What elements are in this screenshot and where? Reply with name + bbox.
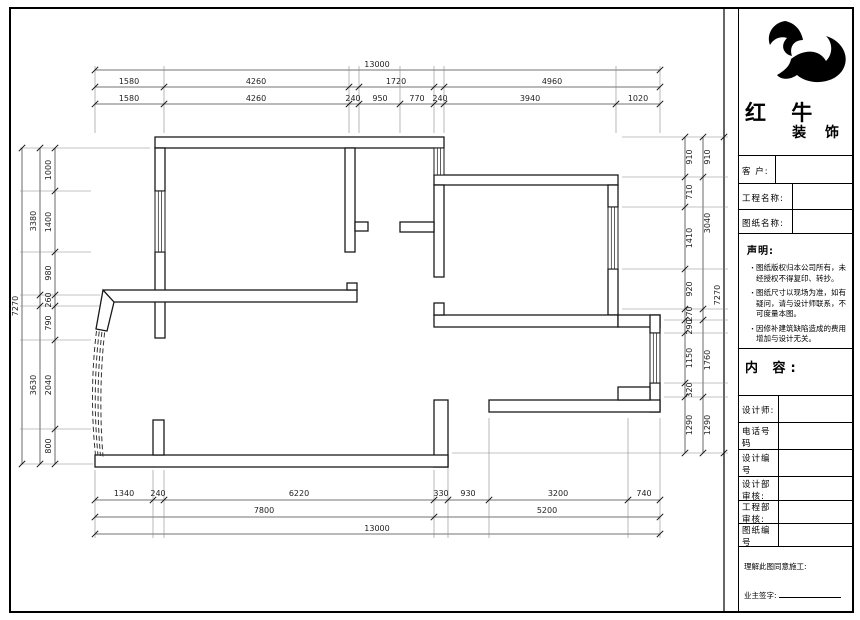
- field-label: 设计编号: [739, 450, 779, 476]
- dim-label: 13000: [364, 524, 389, 533]
- dim-label: 3940: [520, 94, 540, 103]
- field-value-empty: [779, 477, 852, 500]
- dim-label: 790: [44, 315, 53, 330]
- dim-label: 1410: [685, 228, 694, 248]
- wall-stub-2: [400, 222, 434, 232]
- field-row-design-number: 设计编号: [739, 449, 852, 476]
- window-right-lower: [650, 333, 660, 383]
- dim-label: 240: [150, 489, 165, 498]
- logo-area: 红 牛 装 饰: [739, 9, 852, 155]
- dim-label: 3380: [29, 211, 38, 231]
- field-label: 设计部审核:: [739, 477, 779, 500]
- dim-label: 270: [685, 306, 694, 321]
- dim-label: 240: [432, 94, 447, 103]
- dim-label: 3630: [29, 375, 38, 395]
- wall-horizontal-mid-notch: [347, 283, 357, 290]
- field-label: 客 户:: [739, 156, 776, 183]
- bull-swoosh-icon: [739, 9, 854, 97]
- dim-label: 1020: [628, 94, 648, 103]
- statement-item: 图纸版权归本公司所有，未经授权不得复印、转抄。: [749, 263, 847, 284]
- field-value-empty: [793, 184, 852, 209]
- dim-label: 290: [685, 319, 694, 334]
- wall-left-upper: [155, 148, 165, 191]
- field-label: 工程部审核:: [739, 501, 779, 523]
- dim-label: 1340: [114, 489, 134, 498]
- field-value-empty: [779, 396, 852, 422]
- wall-bottom: [95, 455, 448, 467]
- dim-label: 1760: [703, 350, 712, 370]
- flue-box: [618, 387, 650, 400]
- wall-bottom-stub: [153, 420, 164, 455]
- wall-room-br-top: [434, 315, 618, 327]
- dim-label: 930: [460, 489, 475, 498]
- wall-right-upper-b: [608, 269, 618, 315]
- field-value-empty: [793, 210, 852, 233]
- owner-signature-label: 业主签字:: [744, 588, 848, 601]
- dim-label: 1720: [386, 77, 406, 86]
- field-label: 设计师:: [739, 396, 779, 422]
- wall-room-br-notch: [434, 303, 444, 315]
- dim-label: 3200: [548, 489, 568, 498]
- field-row-customer: 客 户:: [739, 155, 852, 183]
- wall-top-left: [155, 137, 444, 148]
- field-value-empty: [779, 501, 852, 523]
- dim-label: 1400: [44, 212, 53, 232]
- statement-item: 因修补建筑缺陷造成的费用增加与设计无关。: [749, 324, 847, 345]
- dim-label: 1290: [685, 415, 694, 435]
- dim-label: 1580: [119, 94, 139, 103]
- brand-subname: 装 饰: [792, 122, 846, 142]
- dim-label: 950: [372, 94, 387, 103]
- field-value-empty: [779, 423, 852, 449]
- dim-label: 740: [636, 489, 651, 498]
- dim-label: 1150: [685, 348, 694, 368]
- dim-label: 4260: [246, 94, 266, 103]
- dim-label: 920: [685, 281, 694, 296]
- dim-label: 800: [44, 438, 53, 453]
- dim-label: 710: [685, 184, 694, 199]
- field-row-design-review: 设计部审核:: [739, 476, 852, 500]
- field-label: 图纸名称:: [739, 210, 793, 233]
- wall-room-br-bottom: [489, 400, 660, 412]
- statement-item: 图纸尺寸以现场为准，如有疑问，请与设计师联系，不可度量本图。: [749, 288, 847, 320]
- dim-label: 770: [409, 94, 424, 103]
- dim-label: 5200: [537, 506, 557, 515]
- field-row-drawing-number: 图纸编号: [739, 523, 852, 546]
- dim-label: 2040: [44, 375, 53, 395]
- window-curved-bay: [92, 331, 104, 457]
- statement-list: 图纸版权归本公司所有，未经授权不得复印、转抄。 图纸尺寸以现场为准，如有疑问，请…: [745, 263, 847, 345]
- field-row-drawing-name: 图纸名称:: [739, 209, 852, 233]
- field-label: 工程名称:: [739, 184, 793, 209]
- statement-heading: 声明:: [747, 242, 847, 257]
- field-row-project-name: 工程名称:: [739, 183, 852, 209]
- dim-label: 980: [44, 265, 53, 280]
- signature-line: [779, 588, 841, 598]
- field-label: 电话号码: [739, 423, 779, 449]
- content-block: 内 容:: [739, 348, 852, 395]
- floor-plan-canvas: 13000 1580 4260 1720 4960 1580 4260 240 …: [0, 0, 860, 620]
- dim-label: 7270: [11, 296, 20, 316]
- window-top-step: [434, 148, 444, 175]
- dim-label: 4960: [542, 77, 562, 86]
- dim-label: 7270: [713, 285, 722, 305]
- wall-right-lower-a: [650, 315, 660, 333]
- field-value-empty: [776, 156, 852, 183]
- dim-label: 1000: [44, 160, 53, 180]
- statement-block: 声明: 图纸版权归本公司所有，未经授权不得复印、转抄。 图纸尺寸以现场为准，如有…: [739, 233, 852, 348]
- field-row-engineering-review: 工程部审核:: [739, 500, 852, 523]
- dim-label: 3040: [703, 213, 712, 233]
- dim-label: 13000: [364, 60, 389, 69]
- title-block: 红 牛 装 饰 客 户: 工程名称: 图纸名称: 声明: 图纸版权归本公司所有，…: [738, 8, 853, 612]
- dim-label: 240: [345, 94, 360, 103]
- dim-label: 6220: [289, 489, 309, 498]
- wall-stub-1: [355, 222, 368, 231]
- wall-interior-1: [345, 148, 355, 252]
- wall-top-right: [434, 175, 618, 185]
- floor-plan-walls: [95, 137, 660, 467]
- field-value-empty: [779, 450, 852, 476]
- signature-block: 理解此图同意施工: 业主签字:: [739, 546, 852, 611]
- dim-label: 330: [433, 489, 448, 498]
- dim-label: 260: [44, 292, 53, 307]
- approval-statement: 理解此图同意施工:: [744, 561, 848, 572]
- dim-label: 1580: [119, 77, 139, 86]
- field-row-phone: 电话号码: [739, 422, 852, 449]
- wall-interior-2: [434, 185, 444, 277]
- dim-label: 1290: [703, 415, 712, 435]
- dim-label: 7800: [254, 506, 274, 515]
- content-label: 内 容:: [745, 361, 801, 376]
- drawing-sheet: 13000 1580 4260 1720 4960 1580 4260 240 …: [0, 0, 860, 620]
- window-left: [155, 191, 165, 252]
- dim-label: 910: [703, 149, 712, 164]
- dim-label: 910: [685, 149, 694, 164]
- field-value-empty: [779, 524, 852, 546]
- wall-right-upper-a: [608, 185, 618, 207]
- field-label: 图纸编号: [739, 524, 779, 546]
- field-row-designer: 设计师:: [739, 395, 852, 422]
- window-right-upper: [608, 207, 618, 269]
- dim-label: 320: [685, 382, 694, 397]
- dim-label: 4260: [246, 77, 266, 86]
- wall-horizontal-mid: [104, 290, 357, 302]
